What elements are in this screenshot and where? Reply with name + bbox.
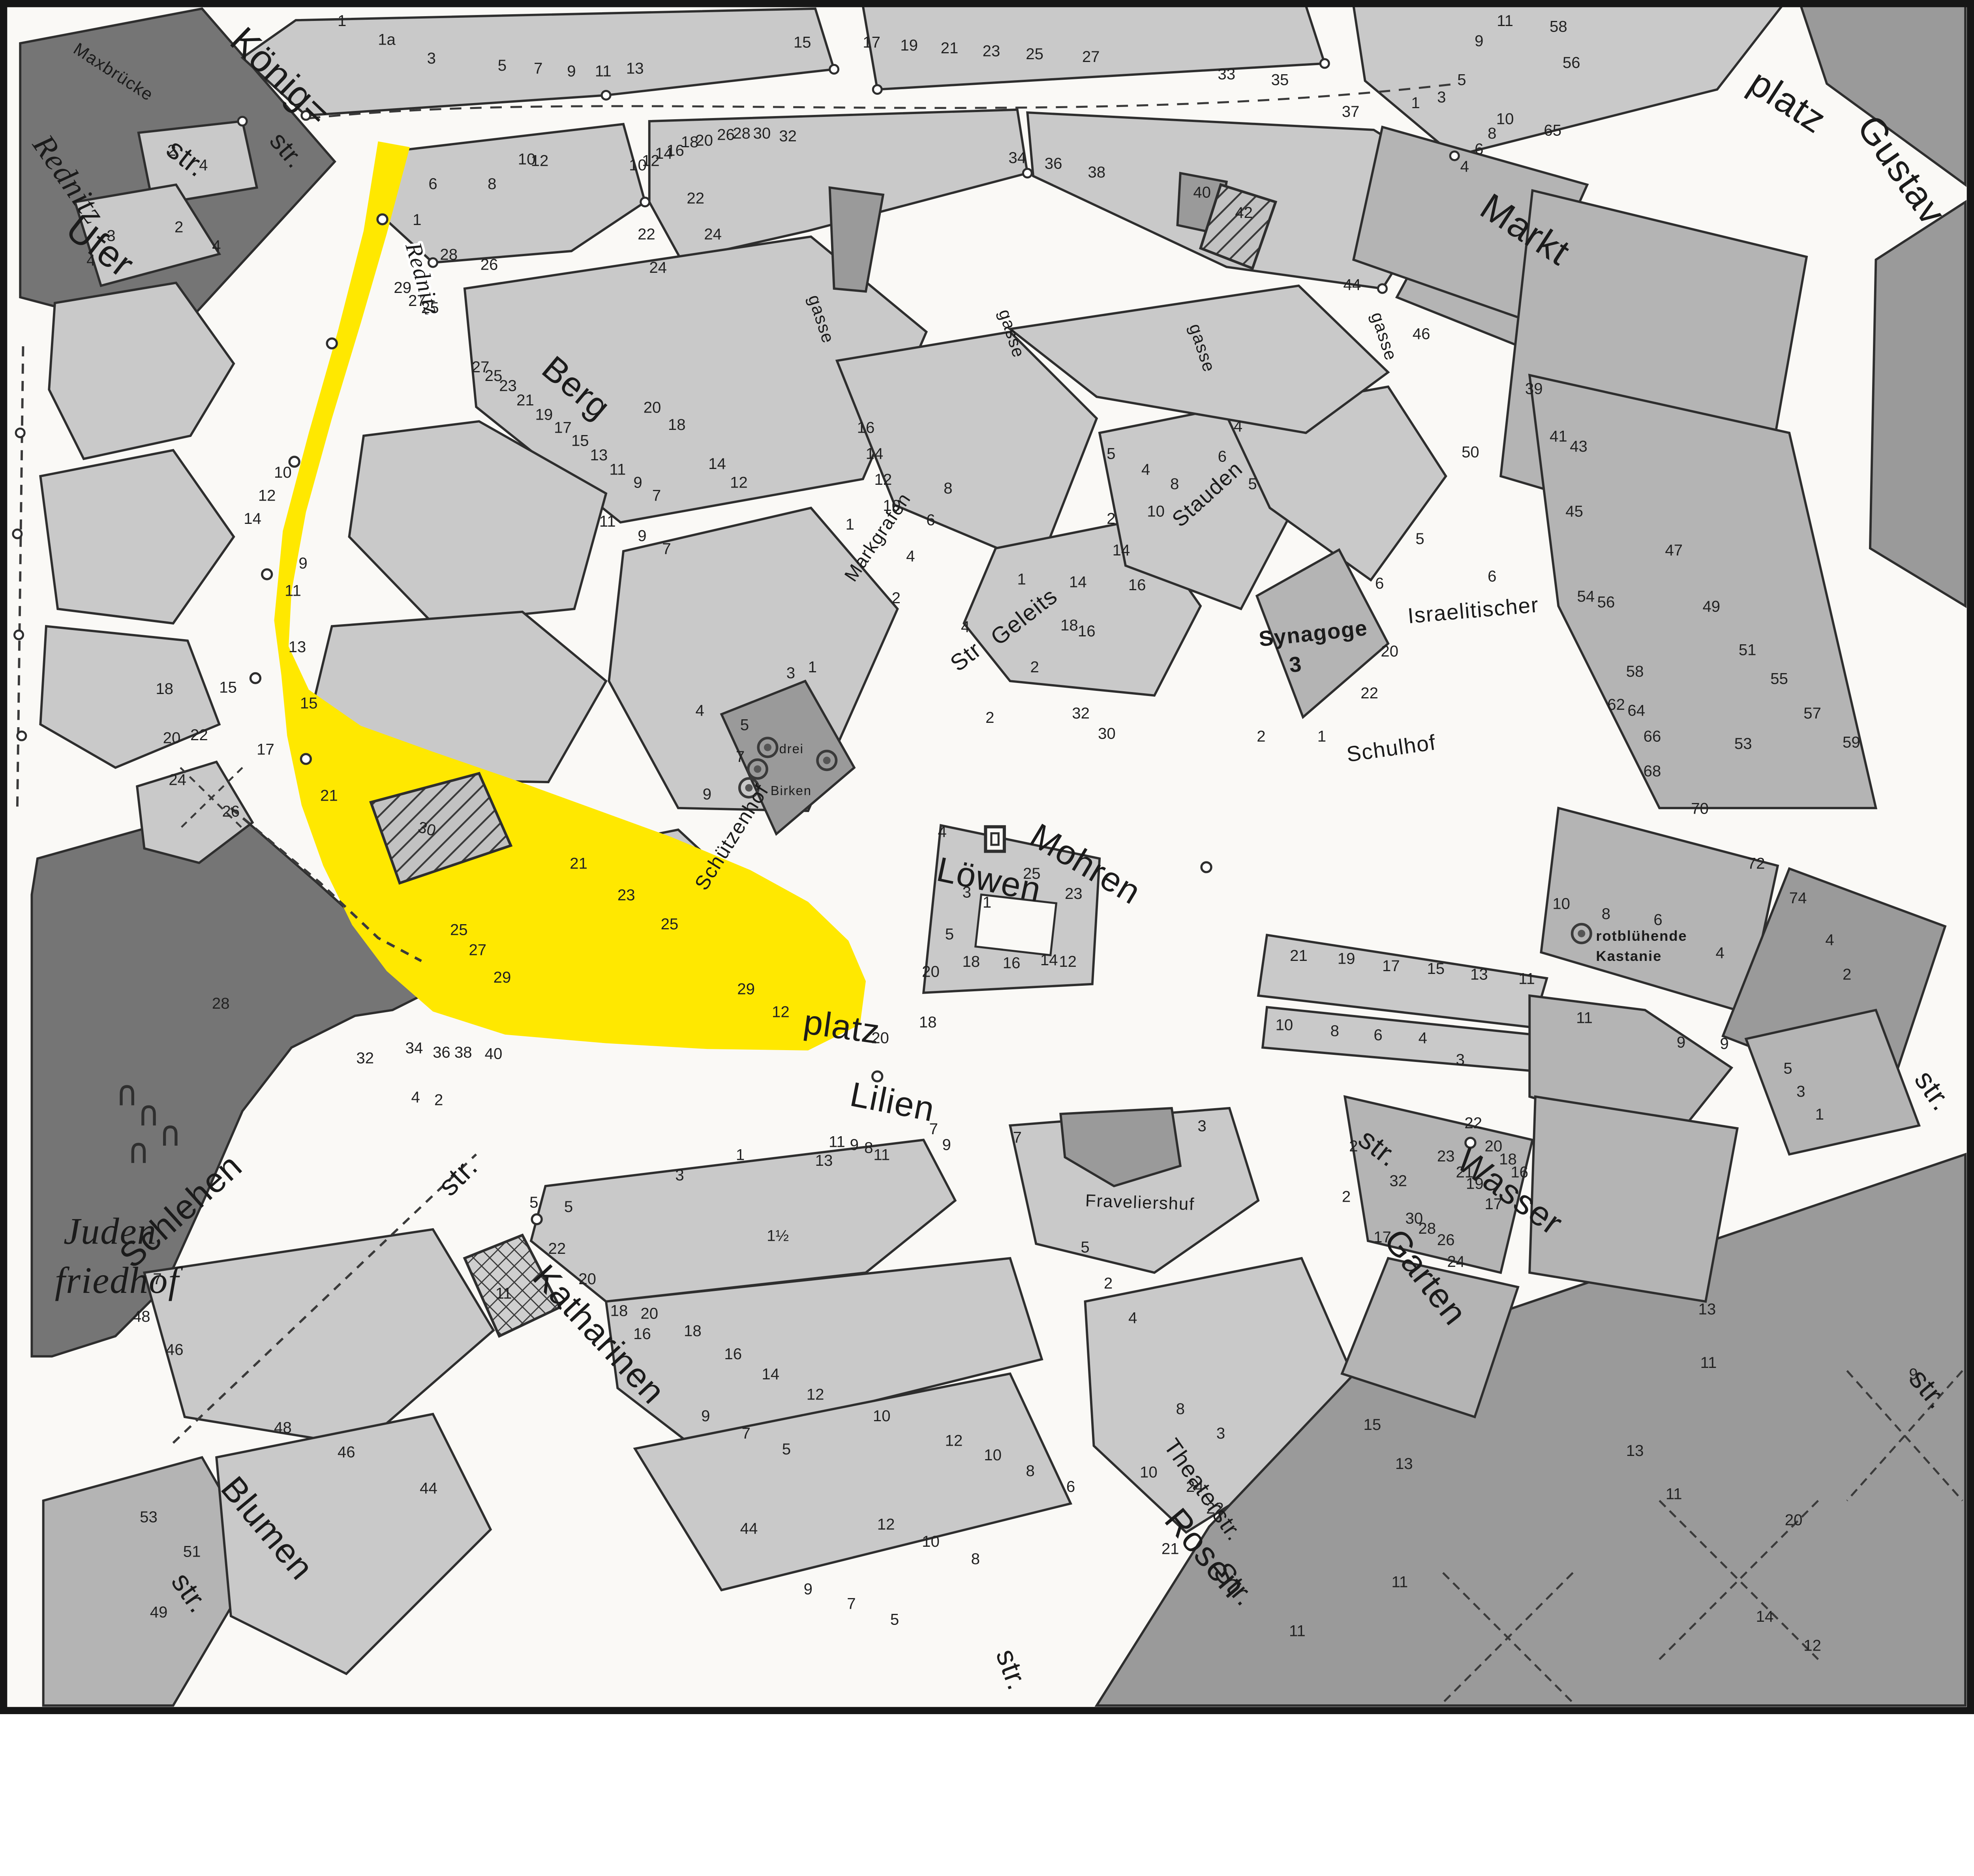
house-number: 36	[433, 1043, 450, 1061]
house-number: 1	[1411, 94, 1420, 112]
house-number: 14	[1069, 573, 1087, 591]
house-number: 8	[1176, 1400, 1185, 1418]
house-number: 11	[285, 582, 301, 599]
house-number: 22	[1206, 1499, 1224, 1517]
house-number: 21	[320, 787, 338, 805]
house-number: 44	[740, 1520, 758, 1537]
house-number: 70	[1691, 799, 1709, 817]
house-number: 20	[640, 1305, 658, 1323]
fountain-icon	[985, 827, 1004, 851]
house-number: 10	[873, 1407, 891, 1425]
house-number: 6	[1066, 1478, 1075, 1495]
house-number: 25	[661, 915, 679, 933]
house-number: 37	[1342, 103, 1360, 120]
house-number: 18	[1060, 616, 1078, 634]
house-number: 29	[737, 980, 755, 998]
house-number: 4	[1234, 417, 1242, 435]
house-number: 6	[1653, 911, 1662, 929]
house-number: 20	[695, 131, 713, 149]
house-number: 24	[1186, 1478, 1204, 1495]
house-number: 25	[450, 921, 468, 938]
house-number: 16	[633, 1325, 651, 1343]
house-number: 2	[985, 709, 994, 726]
house-number: 22	[1464, 1114, 1482, 1132]
house-number: 39	[1525, 380, 1543, 398]
house-number: 38	[1088, 163, 1105, 181]
house-number: 21	[570, 854, 587, 872]
house-number: 12	[531, 152, 549, 169]
tree-icon-core	[764, 744, 771, 751]
house-number: 4	[1716, 944, 1724, 962]
house-number: 1	[808, 658, 817, 676]
house-number: 4	[938, 823, 947, 840]
street-label: Fraveliershuf	[1085, 1191, 1195, 1214]
house-number: 3	[1796, 1082, 1805, 1100]
house-number: 56	[1597, 593, 1615, 611]
house-number: 26	[480, 255, 498, 273]
house-number: 46	[166, 1341, 184, 1358]
house-number: 3	[786, 664, 795, 682]
house-number: 44	[1343, 276, 1361, 294]
house-number: 43	[1570, 437, 1587, 455]
house-number: 20	[644, 398, 661, 416]
well-marker-icon	[377, 214, 387, 224]
house-number: 32	[356, 1049, 374, 1067]
house-number: 15	[571, 431, 589, 449]
house-number: 18	[684, 1322, 702, 1339]
house-number: 20	[578, 1270, 596, 1288]
house-number: 13	[590, 446, 608, 464]
house-number: 23	[1437, 1147, 1455, 1165]
house-number: 10	[1552, 895, 1570, 913]
house-number: 21	[516, 391, 534, 409]
house-number: 5	[945, 925, 954, 943]
house-number: 17	[1374, 1228, 1391, 1246]
house-number: 21	[941, 39, 959, 57]
house-number: 6	[428, 175, 437, 193]
house-number: 29	[493, 968, 511, 986]
house-number: 14	[866, 445, 884, 462]
house-number: 36	[1045, 155, 1062, 173]
house-number: 18	[156, 680, 173, 698]
well-marker-icon	[532, 1214, 542, 1224]
house-number: 28	[1418, 1219, 1436, 1237]
house-number: 14	[708, 455, 726, 473]
house-number: 66	[1644, 728, 1661, 745]
house-number: 17	[863, 34, 880, 51]
house-number: 10	[883, 497, 901, 514]
house-number: 38	[454, 1043, 472, 1061]
house-number: 57	[1803, 704, 1821, 722]
house-number: 22	[190, 726, 208, 744]
house-number: 8	[944, 479, 952, 497]
house-number: 2	[1843, 966, 1851, 983]
house-number: 65	[1544, 122, 1561, 139]
house-number: 24	[169, 771, 186, 788]
house-number: 10	[1147, 502, 1165, 520]
house-number: 11	[609, 460, 626, 478]
house-number: 10	[922, 1533, 940, 1550]
house-number: 2	[1342, 1188, 1351, 1206]
house-number: 51	[183, 1543, 201, 1561]
house-number: 11	[1497, 12, 1513, 30]
house-number: 5	[740, 716, 749, 734]
well-marker-icon	[301, 754, 311, 764]
house-number: 26	[717, 126, 735, 144]
house-number: 7	[741, 1424, 750, 1442]
house-number: 1½	[767, 1227, 789, 1244]
house-number: 7	[652, 486, 661, 504]
tree-icon-core	[1578, 930, 1585, 937]
house-number: 15	[219, 678, 237, 696]
house-number: 22	[1360, 684, 1378, 702]
house-number: 11	[1576, 1009, 1593, 1026]
house-number: 4	[1128, 1309, 1137, 1327]
house-number: 2	[892, 589, 901, 607]
house-number: 20	[1381, 642, 1398, 660]
street-label: Juden	[64, 1210, 157, 1252]
house-number: 13	[1626, 1442, 1644, 1460]
house-number: 47	[1665, 541, 1683, 559]
house-number: 9	[298, 554, 307, 572]
house-number: 23	[617, 886, 635, 904]
house-number: 9	[567, 62, 576, 80]
house-number: 4	[906, 547, 915, 565]
house-number: 16	[1128, 576, 1146, 594]
house-number: 7	[1013, 1129, 1022, 1146]
house-number: 21	[1290, 947, 1308, 964]
house-number: 11	[599, 512, 616, 530]
house-number: 14	[1040, 951, 1058, 969]
house-number: 18	[962, 953, 980, 970]
house-number: 18	[919, 1013, 937, 1031]
house-number: 11	[1391, 1573, 1408, 1591]
street-label: rotblühende	[1596, 928, 1687, 944]
house-number: 12	[945, 1431, 963, 1449]
street-label: friedhof	[55, 1259, 183, 1301]
street-label: drei	[779, 741, 804, 756]
house-number: 64	[1627, 702, 1645, 719]
house-number: 11	[1289, 1622, 1306, 1640]
house-number: 25	[1026, 45, 1043, 63]
house-number: 42	[1235, 204, 1253, 221]
house-number: 4	[86, 251, 95, 269]
house-number: 20	[871, 1029, 889, 1047]
house-number: 9	[633, 473, 642, 491]
house-number: 13	[1395, 1455, 1413, 1473]
house-number: 4	[411, 1088, 420, 1106]
house-number: 41	[1550, 427, 1567, 445]
house-number: 10	[1276, 1016, 1293, 1034]
house-number: 40	[1193, 184, 1211, 201]
house-number: 4	[961, 618, 970, 636]
house-number: 9	[850, 1136, 859, 1154]
house-number: 9	[1677, 1034, 1685, 1051]
house-number: 11	[1518, 970, 1535, 988]
house-number: 2	[1104, 1274, 1113, 1292]
house-number: 17	[257, 741, 274, 758]
house-number: 16	[1078, 622, 1096, 640]
house-number: 28	[440, 246, 458, 263]
house-number: 18	[668, 416, 686, 433]
house-number: 7	[534, 59, 542, 77]
house-number: 33	[1218, 65, 1235, 83]
house-number: 22	[548, 1240, 566, 1257]
house-number: 44	[420, 1479, 437, 1497]
house-number: 4	[695, 702, 704, 719]
house-number: 22	[687, 189, 704, 207]
house-number: 16	[857, 418, 875, 436]
house-number: 1	[1317, 728, 1326, 745]
house-number: 18	[610, 1302, 628, 1319]
well-marker-icon	[1201, 862, 1211, 872]
house-number: 45	[1565, 502, 1583, 520]
house-number: 9	[1909, 1365, 1918, 1383]
house-number: 15	[1427, 960, 1445, 977]
house-number: 16	[1003, 954, 1021, 972]
house-number: 9	[1475, 32, 1483, 50]
house-number: 17	[554, 418, 572, 436]
house-number: 19	[1466, 1175, 1484, 1193]
house-number: 5	[529, 1193, 538, 1211]
house-number: 15	[1364, 1416, 1381, 1433]
house-number: 34	[405, 1039, 423, 1057]
house-number: 3	[1437, 88, 1446, 106]
house-number: 24	[1447, 1253, 1465, 1270]
house-number: 22	[638, 225, 655, 243]
house-number: 24	[704, 225, 722, 243]
well-marker-icon	[262, 569, 272, 579]
house-number: 58	[1626, 662, 1644, 680]
house-number: 30	[1098, 724, 1116, 742]
house-number: 9	[638, 527, 646, 545]
house-number: 1	[1815, 1105, 1824, 1123]
house-number: 6	[1374, 1026, 1382, 1044]
house-number: 5	[564, 1198, 573, 1216]
house-number: 58	[1550, 17, 1567, 35]
house-number: 32	[1072, 704, 1090, 722]
house-number: 62	[1607, 696, 1625, 713]
well-marker-icon	[327, 338, 337, 348]
house-number: 2	[1107, 510, 1115, 527]
house-number: 6	[1218, 448, 1227, 465]
house-number: 1	[846, 515, 854, 533]
city-map: MaxbrückeKönig=str.RednitzUferstr.Rednit…	[0, 0, 1974, 1714]
house-number: 12	[1059, 953, 1077, 970]
house-number: 5	[1107, 445, 1115, 462]
house-number: 16	[1511, 1163, 1528, 1181]
house-number: 32	[1389, 1172, 1407, 1189]
house-number: 10	[1140, 1463, 1158, 1481]
house-number: 30	[753, 124, 771, 142]
street-label: Kastanie	[1596, 948, 1662, 964]
house-number: 3	[1456, 1051, 1465, 1068]
house-number: 12	[877, 1515, 895, 1533]
house-number: 13	[289, 638, 306, 656]
house-number: 4	[1141, 460, 1150, 478]
house-number: 20	[1785, 1511, 1803, 1529]
house-number: 35	[1271, 71, 1289, 89]
house-number: 11	[595, 62, 612, 80]
house-number: 6	[1488, 567, 1496, 585]
house-number: 32	[779, 127, 797, 145]
house-number: 28	[733, 124, 751, 142]
house-number: 2	[1349, 1137, 1358, 1155]
house-number: 7	[847, 1595, 856, 1612]
house-number: 6	[1475, 140, 1483, 158]
house-number: 10	[274, 463, 292, 481]
house-number: 15	[794, 34, 811, 51]
house-number: 1	[338, 12, 346, 30]
house-number: 19	[900, 36, 918, 54]
house-number: 48	[133, 1308, 150, 1325]
street-label: Birken	[771, 783, 812, 798]
house-number: 50	[1462, 443, 1479, 461]
house-number: 8	[1026, 1462, 1034, 1480]
house-number: 11	[829, 1133, 845, 1151]
house-number: 3	[1197, 1117, 1206, 1135]
house-number: 16	[724, 1345, 742, 1363]
house-number: 17	[1382, 957, 1400, 975]
house-number: 6	[1375, 574, 1384, 592]
house-number: 8	[488, 175, 496, 193]
well-marker-icon	[251, 673, 261, 683]
house-number: 23	[983, 42, 1000, 60]
house-number: 10	[1496, 110, 1514, 128]
house-number: 20	[922, 962, 940, 980]
house-number: 53	[1734, 735, 1752, 752]
house-number: 5	[1457, 71, 1466, 89]
house-number: 14	[762, 1365, 779, 1383]
house-number: 1	[413, 211, 421, 229]
house-number: 26	[1437, 1231, 1455, 1249]
house-number: 5	[782, 1440, 791, 1458]
tree-icon-core	[754, 765, 761, 773]
house-number: 10	[984, 1446, 1002, 1464]
house-number: 46	[338, 1443, 355, 1461]
house-number: 1	[983, 893, 991, 911]
house-number: 13	[626, 59, 644, 77]
house-number: 8	[1602, 905, 1610, 923]
house-number: 19	[1338, 950, 1355, 968]
house-number: 8	[864, 1139, 873, 1156]
house-number: 13	[1698, 1300, 1716, 1318]
house-number: 2	[1257, 728, 1265, 745]
house-number: 3	[107, 227, 115, 244]
house-number: 55	[1770, 670, 1788, 687]
house-number: 51	[1739, 641, 1756, 658]
house-number: 8	[1330, 1022, 1339, 1039]
house-number: 11	[873, 1146, 890, 1164]
house-number: 14	[1756, 1608, 1774, 1625]
house-number: 8	[971, 1550, 980, 1568]
house-number: 28	[212, 994, 230, 1012]
house-number: 11	[495, 1284, 512, 1302]
house-number: 68	[1644, 762, 1661, 780]
tree-icon-core	[823, 757, 831, 764]
house-number: 17	[1485, 1195, 1503, 1213]
house-number: 1	[736, 1146, 745, 1164]
house-number: 24	[649, 259, 667, 276]
house-number: 15	[300, 694, 318, 712]
house-number: 5	[1248, 475, 1257, 493]
house-number: 7	[929, 1120, 938, 1138]
house-number: 3	[1216, 1424, 1225, 1442]
house-number: 7	[662, 540, 671, 558]
house-number: 12	[874, 471, 892, 488]
house-number: 14	[1113, 541, 1130, 559]
house-number: 59	[1843, 733, 1860, 751]
house-number: 11	[1666, 1485, 1682, 1503]
house-number: 4	[199, 156, 208, 174]
house-number: 9	[1720, 1035, 1729, 1052]
house-number: 12	[258, 486, 276, 504]
house-number: 20	[163, 729, 181, 747]
house-number: 48	[274, 1418, 292, 1436]
house-number: 74	[1789, 889, 1807, 907]
house-number: 11	[1700, 1354, 1717, 1371]
house-number: 8	[1170, 475, 1179, 493]
house-number: 14	[244, 510, 261, 527]
house-number: 5	[1415, 530, 1424, 548]
house-number: 46	[1413, 325, 1430, 343]
house-number: 13	[815, 1152, 833, 1169]
house-number: 25	[421, 299, 439, 317]
house-number: 34	[1008, 149, 1026, 167]
house-number: 23	[1065, 885, 1083, 902]
house-number: 5	[1783, 1059, 1792, 1077]
house-number: 5	[890, 1610, 899, 1628]
house-number: 12	[1803, 1636, 1821, 1654]
house-number: 26	[222, 803, 240, 820]
house-number: 9	[942, 1136, 951, 1154]
house-number: 7	[153, 1270, 161, 1288]
house-number: 8	[1488, 124, 1496, 142]
house-number: 3	[427, 49, 436, 67]
house-number: 1	[1017, 570, 1026, 588]
house-number: 13	[1470, 966, 1488, 983]
house-number: 3	[963, 883, 971, 901]
house-number: 21	[1162, 1540, 1179, 1557]
house-number: 53	[140, 1508, 158, 1526]
house-number: 40	[485, 1045, 503, 1063]
house-number: 19	[535, 406, 553, 424]
house-number: 2	[167, 142, 176, 159]
house-number: 2	[434, 1091, 443, 1109]
street-label: 3	[1288, 651, 1303, 677]
house-number: 4	[1825, 931, 1834, 949]
house-number: 54	[1577, 587, 1595, 605]
house-number: 12	[807, 1385, 824, 1403]
house-number: 1a	[378, 30, 396, 48]
house-number: 6	[926, 511, 935, 529]
house-number: 56	[1563, 54, 1580, 71]
house-number: 4	[1460, 158, 1469, 175]
house-number: 27	[469, 941, 486, 959]
house-number: 27	[1082, 48, 1100, 66]
house-number: 9	[701, 1407, 710, 1425]
house-number: 12	[730, 473, 748, 491]
house-number: 4	[1419, 1029, 1427, 1047]
house-number: 2	[1030, 658, 1039, 676]
house-number: 2	[175, 218, 183, 236]
house-number: 25	[1023, 865, 1041, 882]
house-number: 5	[498, 56, 507, 74]
house-number: 4	[212, 237, 221, 255]
map-frame: MaxbrückeKönig=str.RednitzUferstr.Rednit…	[0, 0, 1974, 1714]
house-number: 9	[804, 1580, 812, 1598]
house-number: 3	[675, 1166, 684, 1184]
